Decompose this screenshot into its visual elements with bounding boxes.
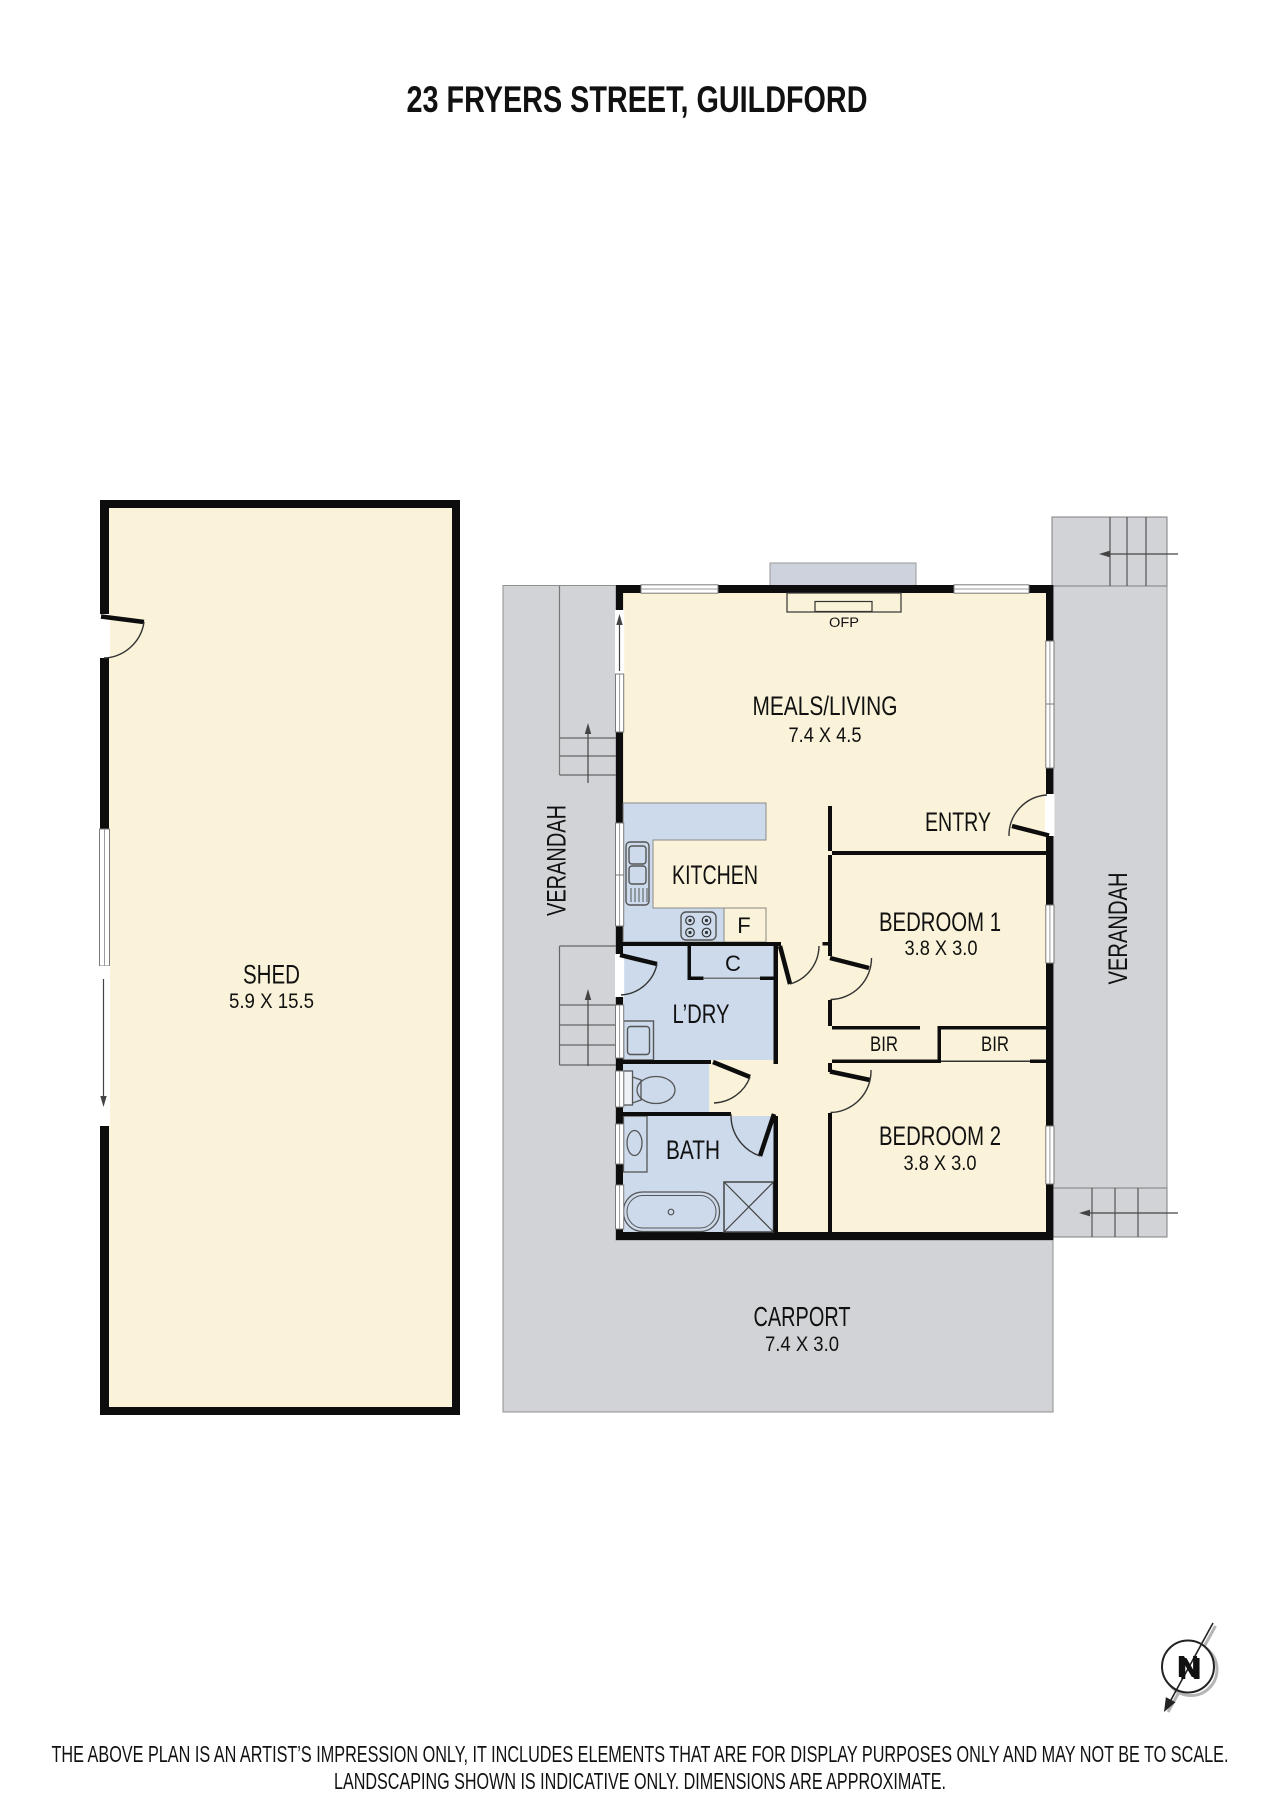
svg-text:3.8 X 3.0: 3.8 X 3.0 — [905, 936, 978, 960]
svg-text:THE ABOVE PLAN IS AN ARTIST’S: THE ABOVE PLAN IS AN ARTIST’S IMPRESSION… — [52, 1741, 1229, 1767]
svg-text:BIR: BIR — [870, 1033, 898, 1056]
svg-text:LANDSCAPING SHOWN IS INDICATIV: LANDSCAPING SHOWN IS INDICATIVE ONLY. DI… — [334, 1768, 946, 1794]
svg-text:SHED: SHED — [243, 960, 300, 990]
svg-text:BIR: BIR — [981, 1033, 1009, 1056]
svg-text:OFP: OFP — [829, 615, 859, 630]
svg-text:BEDROOM 2: BEDROOM 2 — [879, 1121, 1001, 1151]
svg-text:C: C — [725, 951, 741, 976]
svg-text:BATH: BATH — [666, 1135, 720, 1165]
svg-text:3.8 X 3.0: 3.8 X 3.0 — [904, 1151, 977, 1175]
svg-text:L’DRY: L’DRY — [673, 999, 730, 1029]
svg-text:23 FRYERS STREET, GUILDFORD: 23 FRYERS STREET, GUILDFORD — [407, 79, 868, 120]
svg-text:VERANDAH: VERANDAH — [1103, 873, 1133, 985]
svg-text:N: N — [1177, 1649, 1199, 1684]
svg-text:F: F — [737, 913, 750, 938]
svg-text:KITCHEN: KITCHEN — [672, 860, 758, 890]
svg-text:7.4 X 3.0: 7.4 X 3.0 — [765, 1332, 839, 1356]
svg-text:ENTRY: ENTRY — [925, 807, 991, 837]
svg-text:7.4 X 4.5: 7.4 X 4.5 — [789, 723, 862, 747]
svg-text:MEALS/LIVING: MEALS/LIVING — [753, 691, 898, 721]
svg-text:BEDROOM 1: BEDROOM 1 — [879, 907, 1001, 937]
svg-text:VERANDAH: VERANDAH — [542, 805, 572, 916]
svg-text:CARPORT: CARPORT — [754, 1301, 851, 1332]
svg-text:5.9 X 15.5: 5.9 X 15.5 — [229, 989, 314, 1013]
